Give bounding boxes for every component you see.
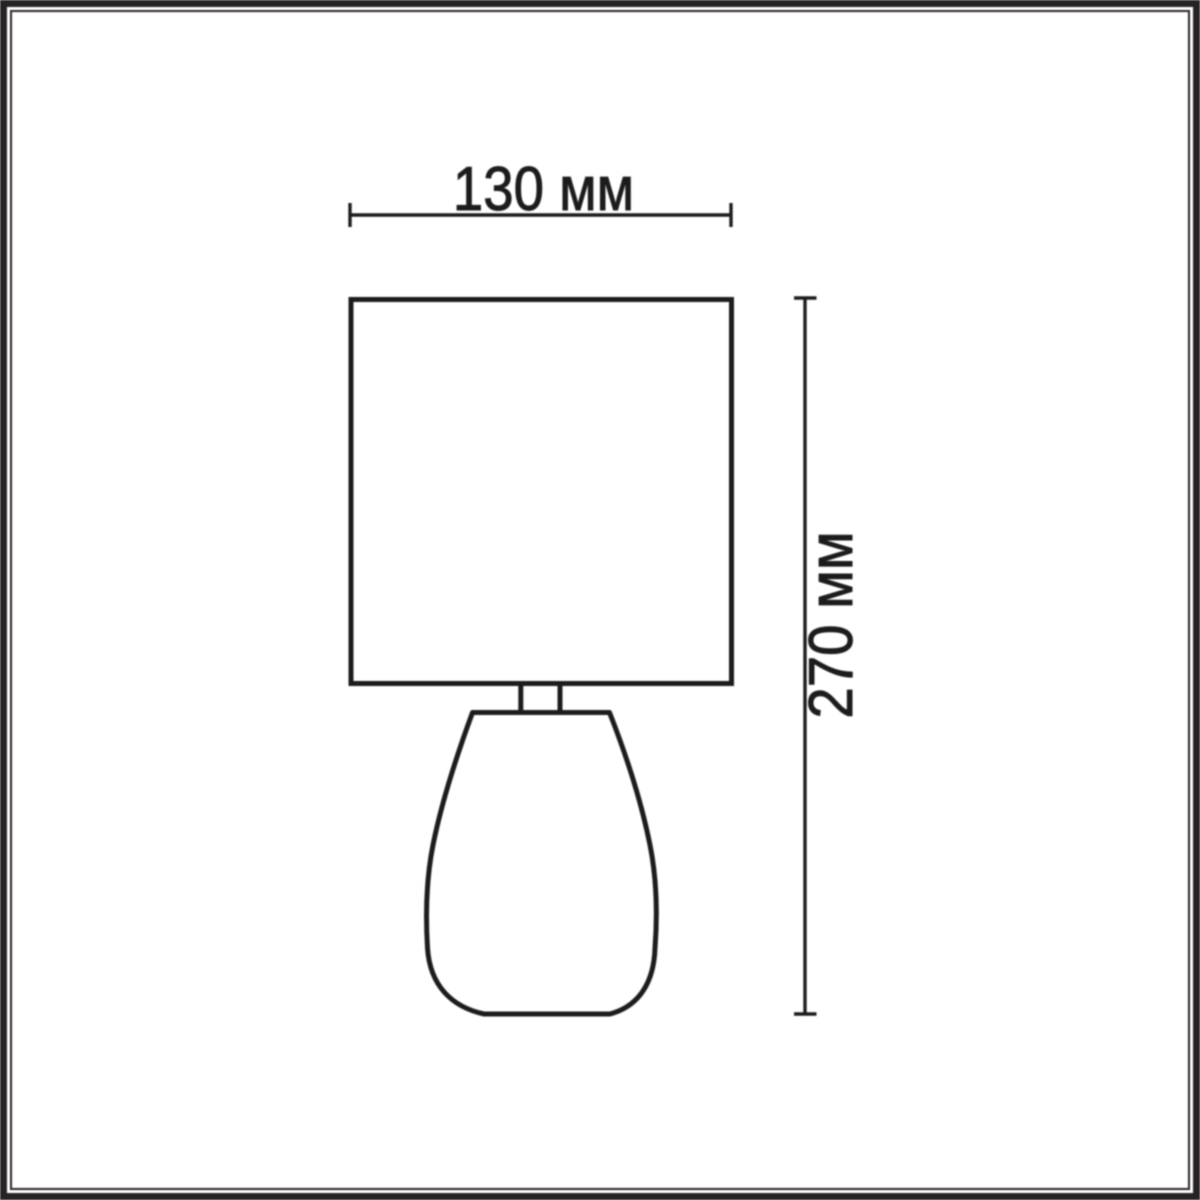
svg-text:130 мм: 130 мм [453, 155, 634, 224]
svg-text:270 мм: 270 мм [796, 531, 866, 718]
